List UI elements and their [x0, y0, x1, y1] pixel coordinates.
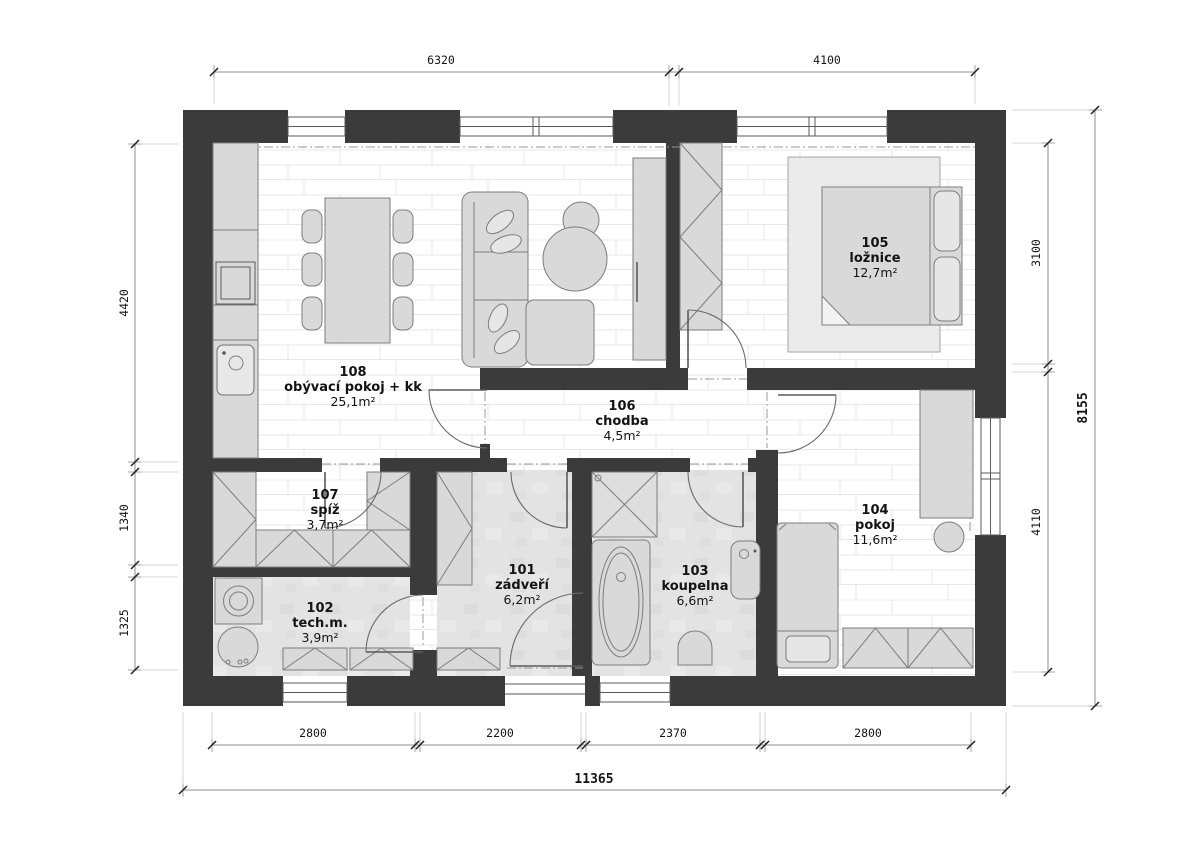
svg-text:108: 108	[339, 365, 366, 380]
pantry-shelf-left	[213, 472, 256, 567]
dining-chair	[302, 210, 322, 243]
dim-bottom-4: 2800	[854, 726, 882, 740]
dim-bottom-1: 2800	[299, 726, 327, 740]
dining-chair	[393, 297, 413, 330]
floor-plan-page: 101 zádveří 6,2m² 102 tech.m. 3,9m² 103 …	[0, 0, 1200, 850]
dim-right-2: 4110	[1029, 508, 1043, 536]
single-bed-pillow	[786, 636, 830, 662]
svg-text:zádveří: zádveří	[495, 578, 550, 593]
kitchen-counter	[213, 143, 258, 458]
dim-left-1: 4420	[117, 289, 131, 317]
svg-text:12,7m²: 12,7m²	[852, 265, 897, 280]
svg-text:6,2m²: 6,2m²	[503, 592, 540, 607]
tech-shelf	[283, 648, 347, 670]
svg-text:4,5m²: 4,5m²	[603, 428, 640, 443]
svg-text:102: 102	[306, 601, 333, 616]
dim-bottom-total: 11365	[574, 772, 613, 787]
dim-bottom-2: 2200	[486, 726, 514, 740]
wall-bottom-2	[347, 676, 505, 706]
dining-chair	[302, 297, 322, 330]
svg-text:obývací pokoj + kk: obývací pokoj + kk	[284, 380, 422, 395]
bathtub	[592, 540, 650, 665]
wall-top-1	[183, 110, 288, 143]
entry-wardrobe	[437, 472, 472, 585]
svg-text:3,9m²: 3,9m²	[301, 630, 338, 645]
svg-text:tech.m.: tech.m.	[292, 616, 347, 631]
wall-living-bedroom	[666, 143, 680, 368]
svg-text:pokoj: pokoj	[855, 518, 895, 533]
wall-hall-bottom	[567, 458, 690, 472]
dim-left-2: 1340	[117, 504, 131, 532]
dim-top-2: 4100	[813, 53, 841, 67]
dim-bottom-3: 2370	[659, 726, 687, 740]
svg-text:6,6m²: 6,6m²	[676, 593, 713, 608]
sofa-chaise	[526, 300, 594, 365]
bedroom-wardrobe	[680, 143, 722, 330]
bed-pillow	[934, 257, 960, 321]
dining-chair	[393, 253, 413, 286]
living-tall-cabinet	[633, 158, 666, 360]
dim-right-1: 3100	[1029, 239, 1043, 267]
wall-entry-bath	[572, 470, 592, 676]
svg-text:3,7m²: 3,7m²	[306, 517, 343, 532]
dining-chair	[393, 210, 413, 243]
wall-mid-right	[747, 368, 975, 390]
dim-right-total: 8155	[1076, 392, 1091, 423]
svg-text:25,1m²: 25,1m²	[330, 394, 375, 409]
dim-top-1: 6320	[427, 53, 455, 67]
dining-set	[302, 198, 413, 343]
svg-text:spíž: spíž	[310, 503, 339, 518]
dim-left-3: 1325	[117, 609, 131, 637]
washing-machine	[215, 578, 262, 624]
svg-text:11,6m²: 11,6m²	[852, 532, 897, 547]
entry-bench	[437, 648, 500, 670]
wall-mid-left	[480, 368, 688, 390]
armchair	[543, 227, 607, 291]
svg-text:koupelna: koupelna	[661, 579, 728, 594]
svg-text:103: 103	[681, 564, 708, 579]
toilet	[678, 631, 712, 665]
room-label-107: 107 spíž 3,7m²	[306, 488, 343, 532]
wall-right-1	[975, 110, 1006, 418]
wall-bottom-1	[183, 676, 283, 706]
svg-text:chodba: chodba	[595, 414, 648, 429]
bed-pillow	[934, 191, 960, 251]
svg-text:ložnice: ložnice	[849, 251, 900, 266]
svg-text:106: 106	[608, 399, 635, 414]
wall-tech-entry-2	[410, 650, 437, 676]
svg-text:105: 105	[861, 236, 888, 251]
wall-bottom-3	[585, 676, 600, 706]
wall-hall-left-jamb	[480, 444, 490, 460]
wall-top-3	[613, 110, 737, 143]
svg-text:101: 101	[508, 563, 535, 578]
svg-text:104: 104	[861, 503, 888, 518]
wall-left	[183, 110, 213, 706]
wall-living-pantry-2	[380, 458, 507, 472]
dining-table	[325, 198, 390, 343]
desk	[920, 390, 973, 518]
wall-bottom-4	[670, 676, 1006, 706]
desk-chair	[934, 522, 964, 552]
floor-plan-drawing: 101 zádveří 6,2m² 102 tech.m. 3,9m² 103 …	[0, 0, 1200, 850]
wall-living-pantry-1	[213, 458, 322, 472]
dining-chair	[302, 253, 322, 286]
svg-text:107: 107	[311, 488, 338, 503]
entry-door-threshold	[505, 676, 585, 706]
wall-top-2	[345, 110, 460, 143]
bedroom-furniture	[633, 143, 962, 360]
